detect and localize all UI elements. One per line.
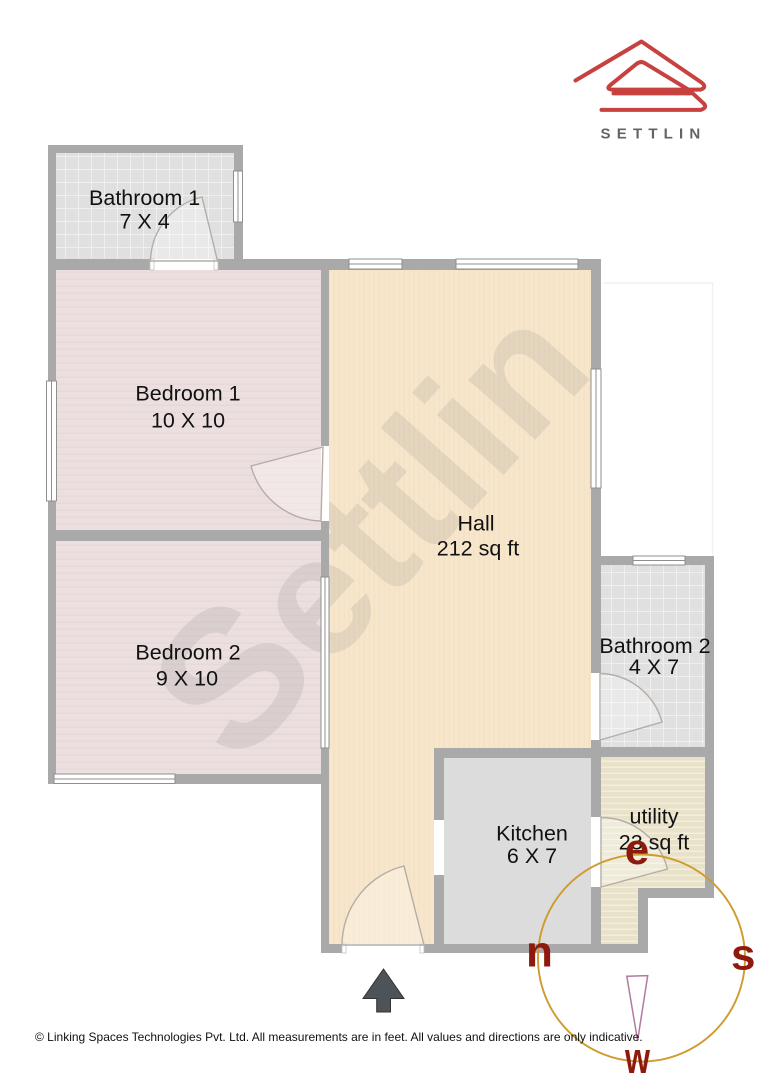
svg-text:SETTLIN: SETTLIN — [601, 126, 707, 143]
svg-text:6 X 7: 6 X 7 — [507, 844, 557, 868]
svg-text:Bathroom 1: Bathroom 1 — [89, 186, 200, 210]
svg-text:7 X 4: 7 X 4 — [119, 210, 169, 234]
svg-text:Kitchen: Kitchen — [496, 822, 568, 846]
svg-text:Bedroom 1: Bedroom 1 — [135, 382, 240, 406]
svg-text:© Linking Spaces Technologies: © Linking Spaces Technologies Pvt. Ltd. … — [35, 1030, 643, 1044]
svg-text:n: n — [526, 928, 553, 977]
svg-text:Bedroom 2: Bedroom 2 — [135, 641, 240, 665]
svg-text:e: e — [625, 825, 649, 874]
svg-text:9 X 10: 9 X 10 — [156, 667, 218, 691]
svg-text:s: s — [731, 931, 755, 980]
svg-text:4 X 7: 4 X 7 — [629, 655, 679, 679]
svg-text:Hall: Hall — [457, 512, 494, 536]
svg-text:212 sq ft: 212 sq ft — [437, 537, 519, 561]
svg-text:10 X 10: 10 X 10 — [151, 409, 225, 433]
